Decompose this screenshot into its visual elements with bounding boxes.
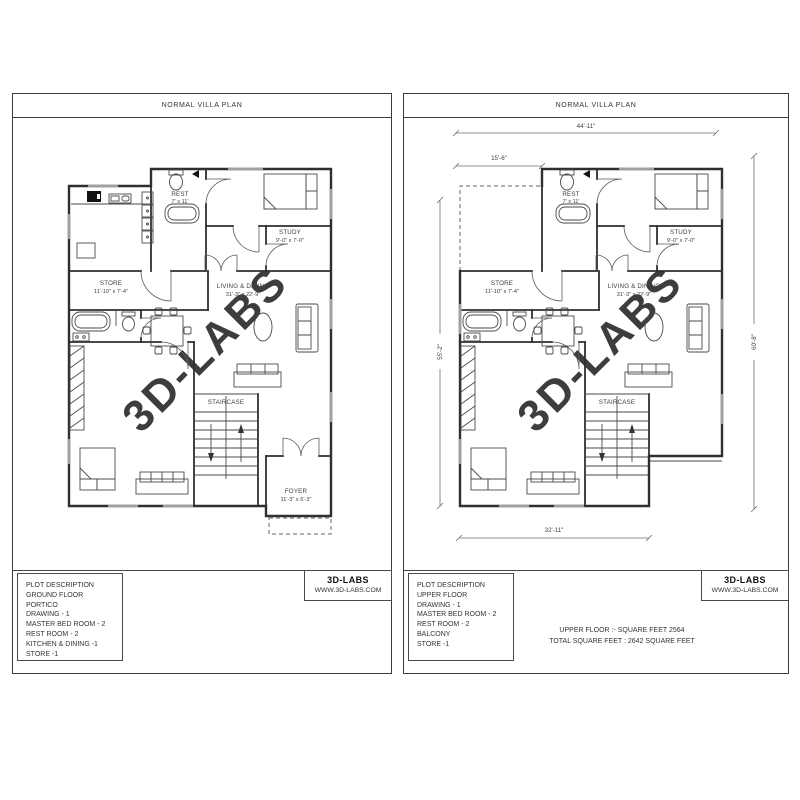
upper-floor-plan-drawing: 3D-LABS [404,94,788,571]
sheet-ground-floor: 3D-LABS [12,93,392,674]
plot-description-line: MASTER BED ROOM - 2 [26,620,122,630]
sheet-upper-floor: 3D-LABS [403,93,789,674]
room-label-rest: REST [562,191,579,198]
brand-website: WWW.3D-LABS.COM [305,587,391,594]
room-dim-rest: 7' x 11' [172,199,189,205]
dim-label-bottom: 32'-11" [545,527,564,534]
sheet-title: NORMAL VILLA PLAN [556,102,637,109]
room-label-store: STORE [100,280,122,287]
brand-name: 3D-LABS [305,575,391,585]
room-dim-study: 9'-0" x 7'-0" [276,238,304,244]
staircase-drawing [194,394,258,479]
plot-description-box: PLOT DESCRIPTION UPPER FLOOR DRAWING - 1… [408,573,514,661]
room-label-staircase: STAIRCASE [599,399,635,406]
plot-description-line: GROUND FLOOR [26,591,122,601]
dim-label-right: 60'-8" [751,334,758,350]
plot-description-line: PLOT DESCRIPTION [26,581,122,591]
room-label-foyer: FOYER [285,488,308,495]
plot-description-line: STORE -1 [26,650,122,660]
room-dim-rest: 7' x 11' [563,199,580,205]
room-label-rest: REST [171,191,188,198]
plot-description-line: BALCONY [417,630,513,640]
room-label-living: LIVING & DINING [608,283,661,290]
room-dim-living: 31'-3" x 22'-9" [617,292,651,298]
plot-description-box: PLOT DESCRIPTION GROUND FLOOR PORTICO DR… [17,573,123,661]
plot-description-line: REST ROOM - 2 [26,630,122,640]
watermark: 3D-LABS [113,257,297,441]
title-block: PLOT DESCRIPTION GROUND FLOOR PORTICO DR… [13,570,391,673]
dim-label-upper-left: 15'-6" [491,155,507,162]
area-summary-upper-floor: UPPER FLOOR :- SQUARE FEET 2564 [516,625,728,636]
plot-description-line: DRAWING - 1 [417,601,513,611]
plot-description-line: DRAWING - 1 [26,610,122,620]
sheet-title-bar: NORMAL VILLA PLAN [13,94,391,118]
title-block: PLOT DESCRIPTION UPPER FLOOR DRAWING - 1… [404,570,788,673]
room-label-study: STUDY [279,229,301,236]
plot-description-line: KITCHEN & DINING -1 [26,640,122,650]
plot-description-line: STORE -1 [417,640,513,650]
sheet-title: NORMAL VILLA PLAN [162,102,243,109]
room-label-living: LIVING & DINING [217,283,270,290]
plot-description-line: UPPER FLOOR [417,591,513,601]
room-label-store: STORE [491,280,513,287]
plot-description-line: PLOT DESCRIPTION [417,581,513,591]
room-dim-foyer: 11'-3" x 6'-3" [281,497,312,503]
room-label-study: STUDY [670,229,692,236]
area-summary: UPPER FLOOR :- SQUARE FEET 2564 TOTAL SQ… [516,625,728,647]
watermark: 3D-LABS [508,257,692,441]
room-dim-store: 11'-10" x 7'-4" [94,289,128,295]
room-dim-store: 11'-10" x 7'-4" [485,289,519,295]
brand-website: WWW.3D-LABS.COM [702,587,788,594]
ground-floor-plan-drawing: 3D-LABS [13,94,391,571]
area-summary-total: TOTAL SQUARE FEET : 2642 SQUARE FEET [516,636,728,647]
room-label-staircase: STAIRCASE [208,399,244,406]
dim-label-top: 44'-11" [577,123,596,130]
dim-label-left: 55'-2" [437,344,444,360]
room-dim-study: 9'-0" x 7'-0" [667,238,695,244]
plot-description-line: REST ROOM - 2 [417,620,513,630]
sheet-title-bar: NORMAL VILLA PLAN [404,94,788,118]
brand-name: 3D-LABS [702,575,788,585]
plot-description-line: PORTICO [26,601,122,611]
brand-box: 3D-LABS WWW.3D-LABS.COM [701,570,789,601]
staircase-drawing [585,394,649,479]
brand-box: 3D-LABS WWW.3D-LABS.COM [304,570,392,601]
room-dim-living: 31'-3" x 22'-9" [226,292,260,298]
plot-description-line: MASTER BED ROOM - 2 [417,610,513,620]
